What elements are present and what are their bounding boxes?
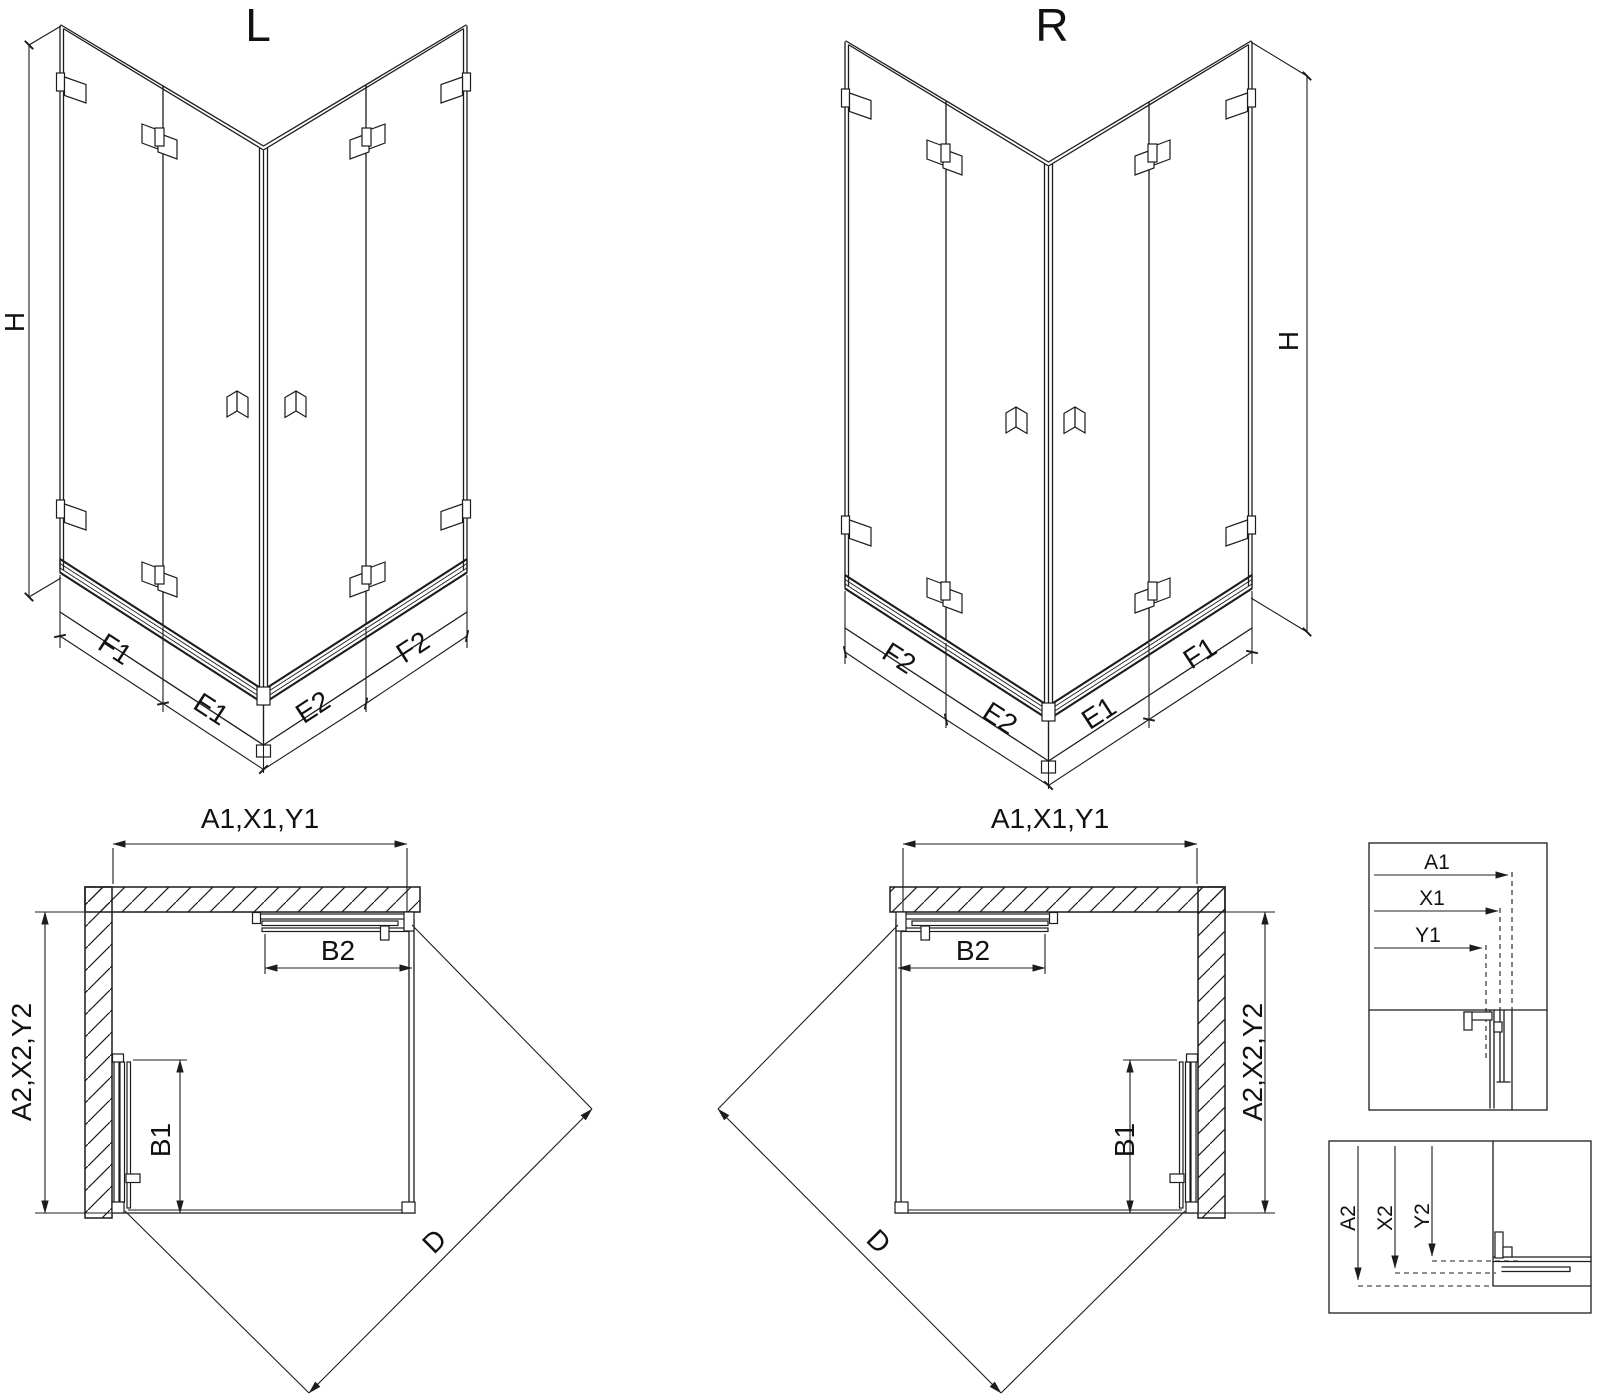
plan-left-b1-label: B1: [145, 1123, 176, 1157]
detail-box-bottom: A2 X2 Y2: [1329, 1141, 1591, 1313]
plan-view-left: A1,X1,Y1 A2,X2,Y2 B2 B1 D: [6, 803, 592, 1393]
detail-bottom-profile: [1493, 1232, 1591, 1286]
iso-right-title: R: [1035, 0, 1068, 51]
iso-right-dim-h: H: [1251, 42, 1307, 632]
detail-bottom-x2-label: X2: [1374, 1205, 1397, 1231]
detail-bottom-a2-label: A2: [1337, 1205, 1360, 1231]
plan-mid-d-label: D: [861, 1223, 897, 1259]
detail-top-profile: [1464, 1010, 1512, 1110]
plan-left-depth-label: A2,X2,Y2: [6, 1003, 37, 1121]
diagram-canvas: L H F1 E1 E2 F2 R H F2 E2 E1 F1 A1,X1,Y1…: [0, 0, 1600, 1399]
detail-bottom-y2-label: Y2: [1411, 1203, 1434, 1229]
iso-right-f1-label: F1: [1178, 631, 1222, 675]
plan-mid-b1-label: B1: [1109, 1123, 1140, 1157]
plan-mid-b2-label: B2: [956, 935, 990, 966]
detail-box-top: A1 X1 Y1: [1369, 843, 1547, 1110]
iso-right-h-label: H: [1273, 331, 1304, 351]
plan-view-middle: A1,X1,Y1 A2,X2,Y2 B2 B1 D: [718, 803, 1275, 1393]
detail-top-a1-label: A1: [1424, 851, 1450, 874]
iso-left-title: L: [245, 0, 271, 51]
detail-top-y1-label: Y1: [1415, 924, 1441, 947]
detail-top-x1-label: X1: [1419, 887, 1445, 910]
iso-right-e2-label: E2: [977, 696, 1023, 741]
plan-left-b2-label: B2: [321, 935, 355, 966]
technical-drawing-page: { "iso_left": { "title": "L", "h": "H", …: [0, 0, 1600, 1399]
plan-left-width-label: A1,X1,Y1: [201, 803, 319, 834]
iso-left-h-label: H: [0, 312, 30, 332]
plan-left-side-wall: [85, 887, 112, 1218]
plan-mid-width-label: A1,X1,Y1: [991, 803, 1109, 834]
iso-left-f1-label: F1: [93, 627, 137, 671]
plan-mid-side-wall: [1198, 887, 1225, 1218]
iso-view-left: L H F1 E1 E2 F2: [0, 0, 471, 773]
iso-left-dim-h: H: [0, 26, 61, 597]
plan-left-top-wall: [85, 887, 420, 912]
plan-mid-depth-label: A2,X2,Y2: [1237, 1003, 1268, 1121]
iso-view-right: R H F2 E2 E1 F1: [842, 0, 1308, 789]
plan-mid-top-wall: [890, 887, 1225, 912]
